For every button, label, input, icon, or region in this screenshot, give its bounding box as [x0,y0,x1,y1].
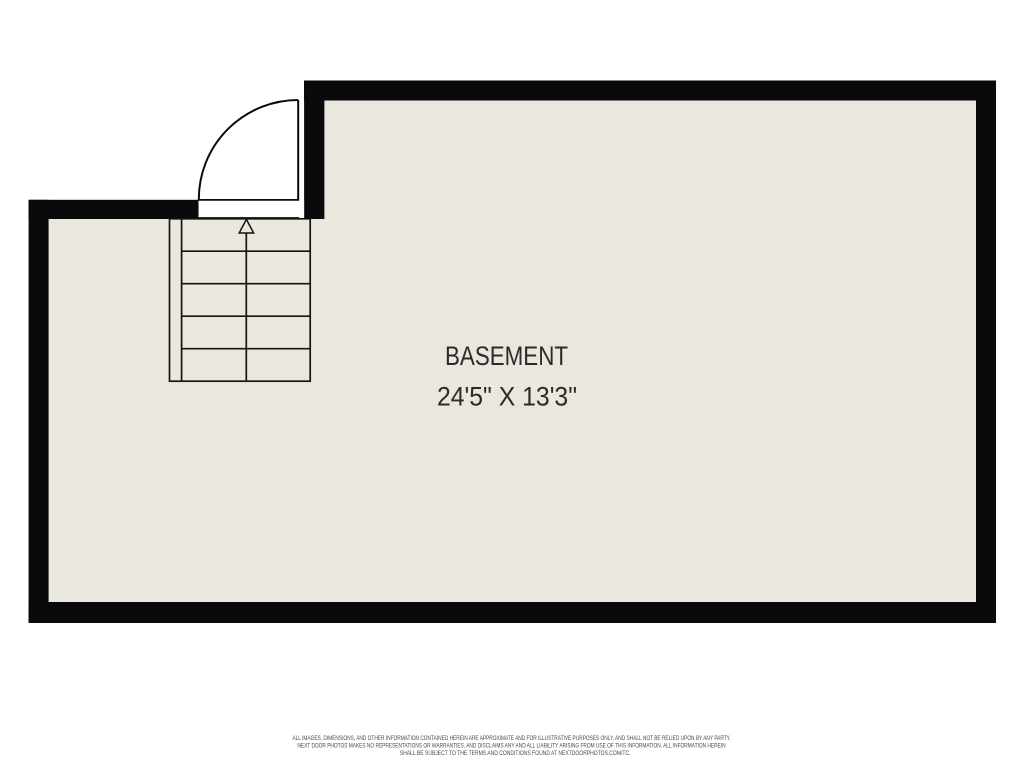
svg-text:24'5" X 13'3": 24'5" X 13'3" [437,381,577,411]
svg-text:ALL IMAGES, DIMENSIONS, AND OT: ALL IMAGES, DIMENSIONS, AND OTHER INFORM… [292,735,730,742]
svg-text:SHALL BE SUBJECT TO THE TERMS: SHALL BE SUBJECT TO THE TERMS AND CONDIT… [400,750,631,757]
svg-text:NEXT DOOR PHOTOS MAKES NO REPR: NEXT DOOR PHOTOS MAKES NO REPRESENTATION… [297,742,725,749]
svg-text:BASEMENT: BASEMENT [445,341,568,371]
